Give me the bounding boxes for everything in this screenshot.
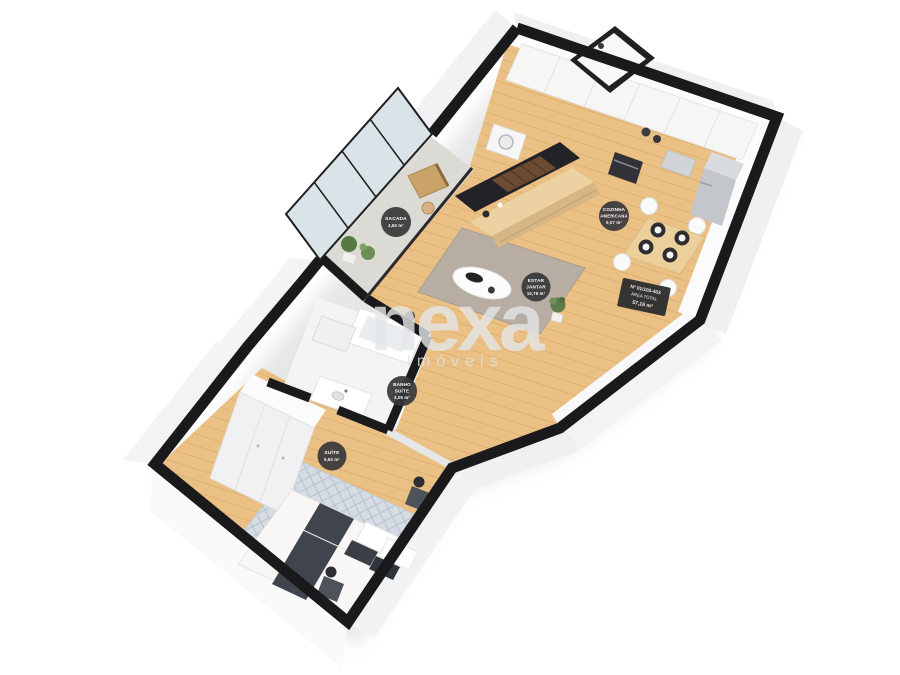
badge-banho: BANHO SUÍTE 4,05 m² <box>387 376 417 406</box>
balcony-side-table <box>422 202 434 214</box>
svg-text:SUÍTE: SUÍTE <box>395 387 410 394</box>
decor-object <box>483 211 490 218</box>
svg-text:SACADA: SACADA <box>385 216 407 222</box>
floor-plan-canvas: SACADA 4,60 m² COZINHA AMERICANA 9,07 m²… <box>0 0 900 675</box>
svg-text:4,60 m²: 4,60 m² <box>388 223 404 228</box>
svg-text:4,05 m²: 4,05 m² <box>394 395 410 400</box>
badge-sacada: SACADA 4,60 m² <box>381 207 411 237</box>
svg-text:AMERICANA: AMERICANA <box>600 214 627 219</box>
svg-text:COZINHA: COZINHA <box>603 207 626 212</box>
svg-text:9,07 m²: 9,07 m² <box>606 220 622 225</box>
badge-suite: SUÍTE 9,83 m² <box>318 442 347 471</box>
badge-cozinha: COZINHA AMERICANA 9,07 m² <box>599 201 629 231</box>
dining-chair <box>641 198 658 215</box>
floor-plan-render: SACADA 4,60 m² COZINHA AMERICANA 9,07 m²… <box>0 0 900 675</box>
svg-text:9,83 m²: 9,83 m² <box>324 457 340 462</box>
dining-chair <box>614 254 631 271</box>
watermark: nexa Imóveis <box>370 277 546 370</box>
decor-vase <box>498 203 503 208</box>
watermark-subtitle: Imóveis <box>406 353 503 370</box>
svg-text:BANHO: BANHO <box>393 382 411 387</box>
